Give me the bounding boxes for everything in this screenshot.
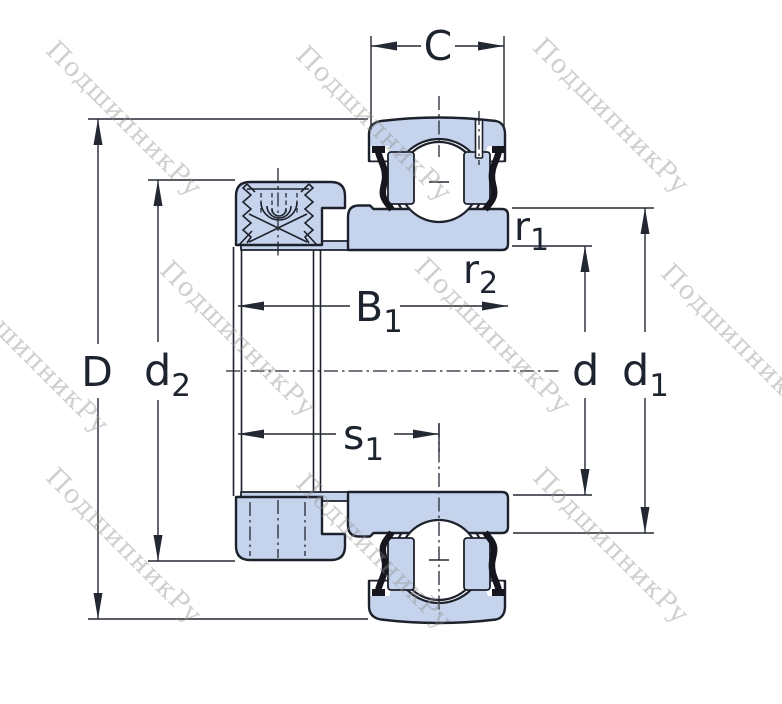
label-r1-text: r1 <box>514 205 549 258</box>
watermark-text: ПодшипникРу <box>527 462 695 630</box>
collar-top-body <box>236 182 345 245</box>
outer-ring-shoulder-right-bottom <box>464 538 490 590</box>
dimension-D-label: D <box>81 348 113 396</box>
watermark-text: ПодшипникРу <box>655 258 782 426</box>
bearing-diagram-page: C D d2 B1 s1 <box>0 0 782 704</box>
outer-ring-shoulder-right-top <box>464 152 490 204</box>
bearing-cross-section-diagram: C D d2 B1 s1 <box>0 0 782 704</box>
dimension-s1-label: s1 <box>343 411 384 468</box>
watermark-text: ПодшипникРу <box>40 462 208 630</box>
watermark-text: ПодшипникРу <box>527 32 695 200</box>
dimension-s1: s1 <box>238 411 439 468</box>
label-r1: r1 <box>514 205 549 258</box>
dimension-d2-label: d2 <box>144 346 191 404</box>
dimension-d-label: d <box>572 346 599 396</box>
dimension-C-label: C <box>424 22 453 70</box>
dimension-d1-label: d1 <box>622 346 669 404</box>
dimension-B1-label: B1 <box>355 283 403 340</box>
dimension-d2: d2 <box>144 180 235 561</box>
dimension-C: C <box>371 22 504 130</box>
